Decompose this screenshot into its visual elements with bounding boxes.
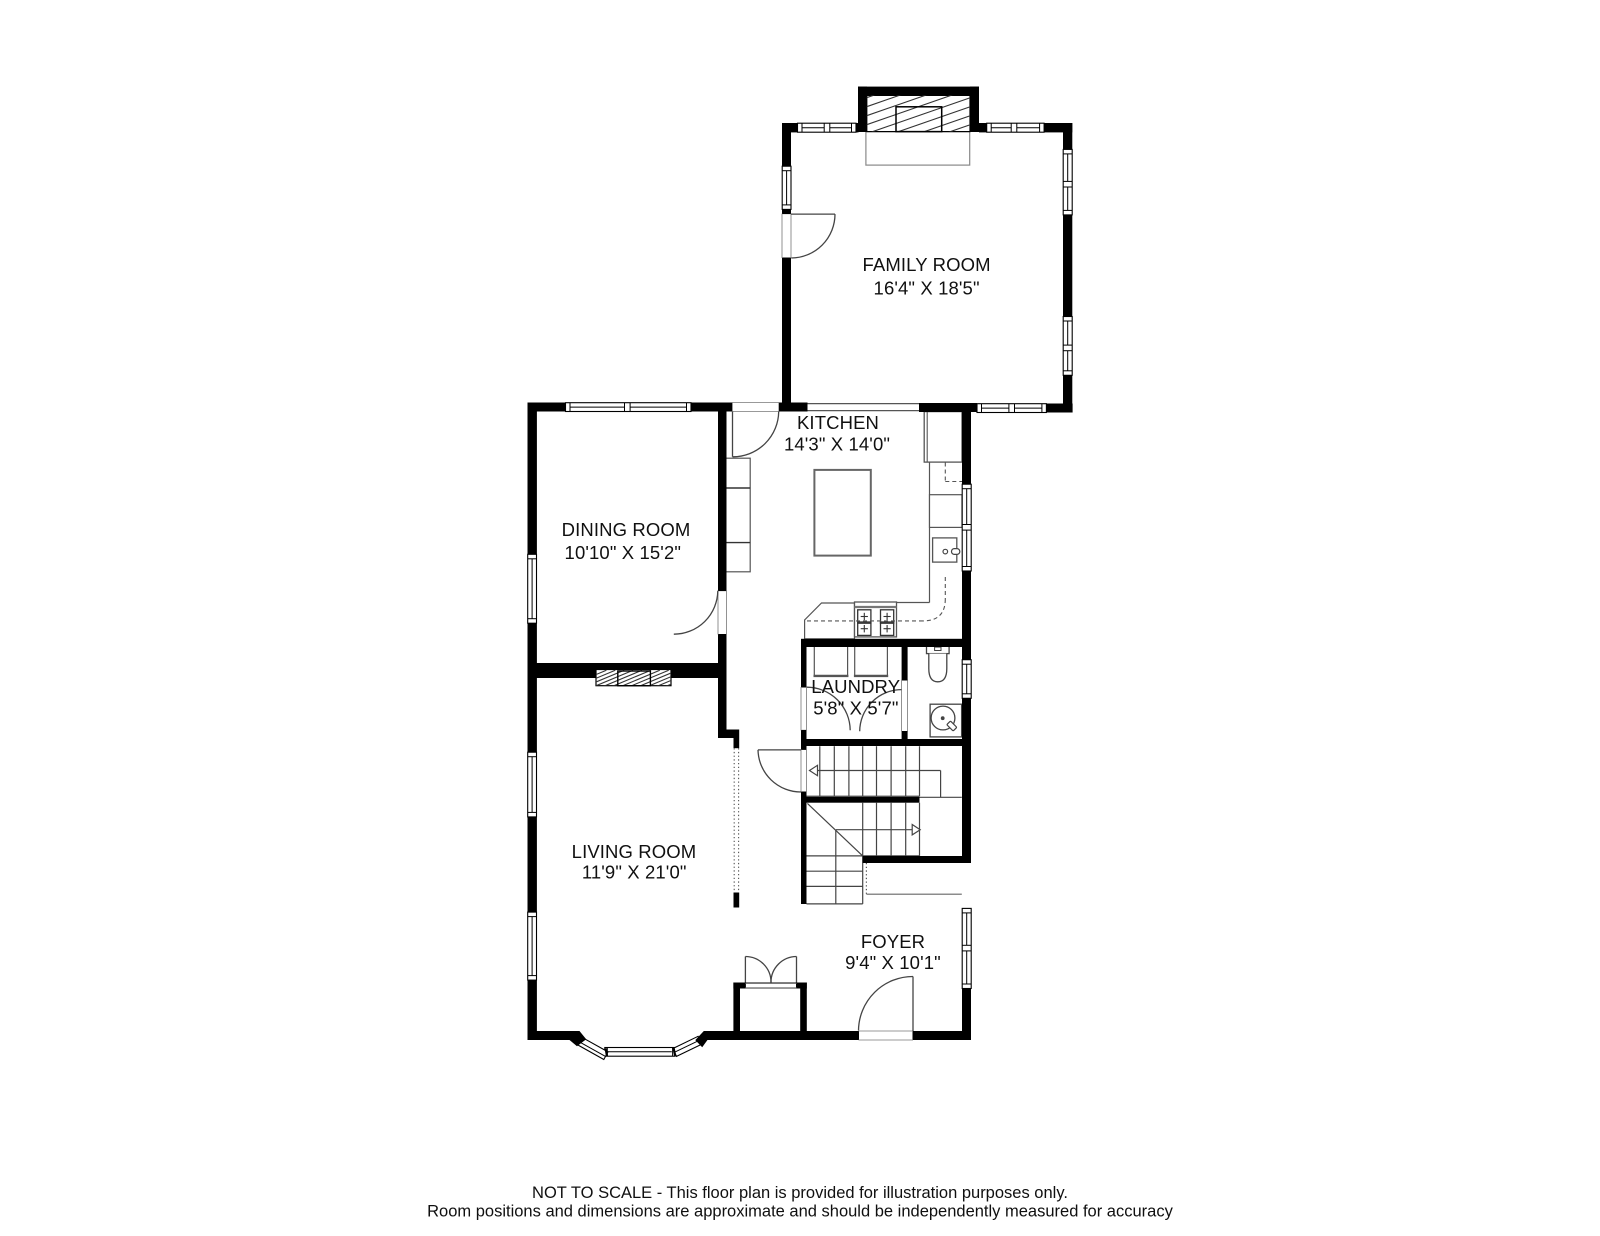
- svg-text:14'3" X 14'0": 14'3" X 14'0": [784, 434, 890, 455]
- svg-text:5'8" X 5'7": 5'8" X 5'7": [813, 698, 898, 719]
- svg-text:10'10" X 15'2": 10'10" X 15'2": [565, 542, 682, 563]
- svg-text:NOT TO SCALE - This floor plan: NOT TO SCALE - This floor plan is provid…: [532, 1184, 1068, 1202]
- svg-text:KITCHEN: KITCHEN: [797, 412, 879, 433]
- svg-text:11'9" X 21'0": 11'9" X 21'0": [582, 862, 687, 883]
- svg-text:Room positions and dimensions: Room positions and dimensions are approx…: [427, 1203, 1173, 1221]
- svg-text:16'4" X 18'5": 16'4" X 18'5": [874, 278, 980, 299]
- svg-text:LAUNDRY: LAUNDRY: [811, 676, 900, 697]
- svg-text:9'4" X 10'1": 9'4" X 10'1": [845, 952, 941, 973]
- svg-text:DINING ROOM: DINING ROOM: [562, 519, 691, 540]
- svg-text:FAMILY ROOM: FAMILY ROOM: [863, 254, 991, 275]
- svg-text:LIVING ROOM: LIVING ROOM: [572, 841, 697, 862]
- svg-text:FOYER: FOYER: [861, 931, 925, 952]
